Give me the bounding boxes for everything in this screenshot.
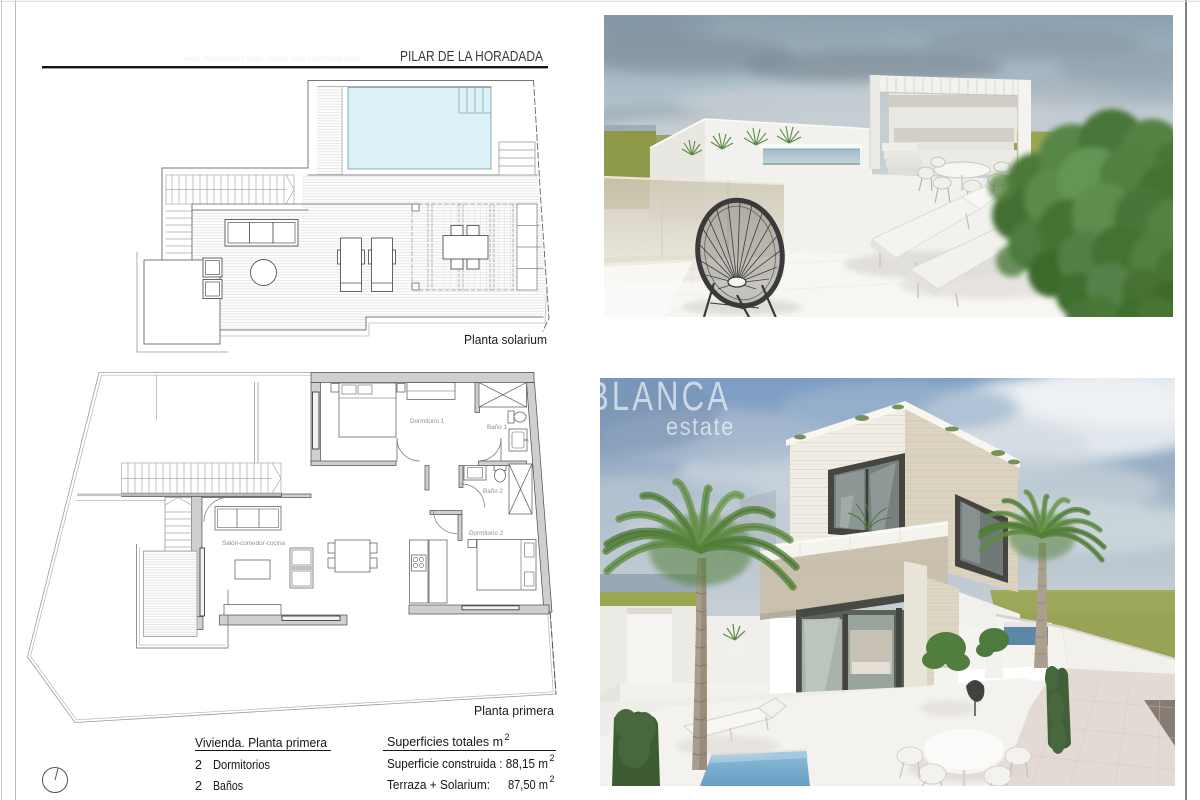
svg-text:Baño 1: Baño 1 [487,424,507,431]
svg-text:PILAR DE LA HORADADA: PILAR DE LA HORADADA [400,49,543,65]
svg-text:AVDA. TAX XXXXXXX XXXX - XXXXX: AVDA. TAX XXXXXXX XXXX - XXXXX XXXX XXX … [185,57,361,63]
svg-text:2: 2 [550,753,555,763]
svg-text:Planta primera: Planta primera [474,703,555,718]
svg-text:Dormitorio 1: Dormitorio 1 [410,418,445,425]
svg-text:2: 2 [195,758,202,772]
svg-text:87,50 m: 87,50 m [508,778,548,792]
svg-text:Superficies totales m: Superficies totales m [387,735,503,749]
svg-text:Superficie construida : 88,15: Superficie construida : 88,15 m [387,757,548,771]
svg-text:Planta solarium: Planta solarium [464,332,547,347]
svg-text:Terraza + Solarium:: Terraza + Solarium: [387,778,490,792]
svg-text:Vivienda. Planta primera: Vivienda. Planta primera [195,736,327,750]
svg-text:estate: estate [666,413,735,441]
svg-text:2: 2 [550,774,555,784]
svg-text:Dormitorio 2: Dormitorio 2 [469,530,504,537]
svg-text:2: 2 [505,732,510,742]
svg-text:Salón-comedor-cocina: Salón-comedor-cocina [222,540,285,547]
svg-text:Baños: Baños [213,779,243,793]
svg-text:2: 2 [195,779,202,793]
svg-text:Dormitorios: Dormitorios [213,758,270,772]
svg-text:Baño 2: Baño 2 [483,488,503,495]
